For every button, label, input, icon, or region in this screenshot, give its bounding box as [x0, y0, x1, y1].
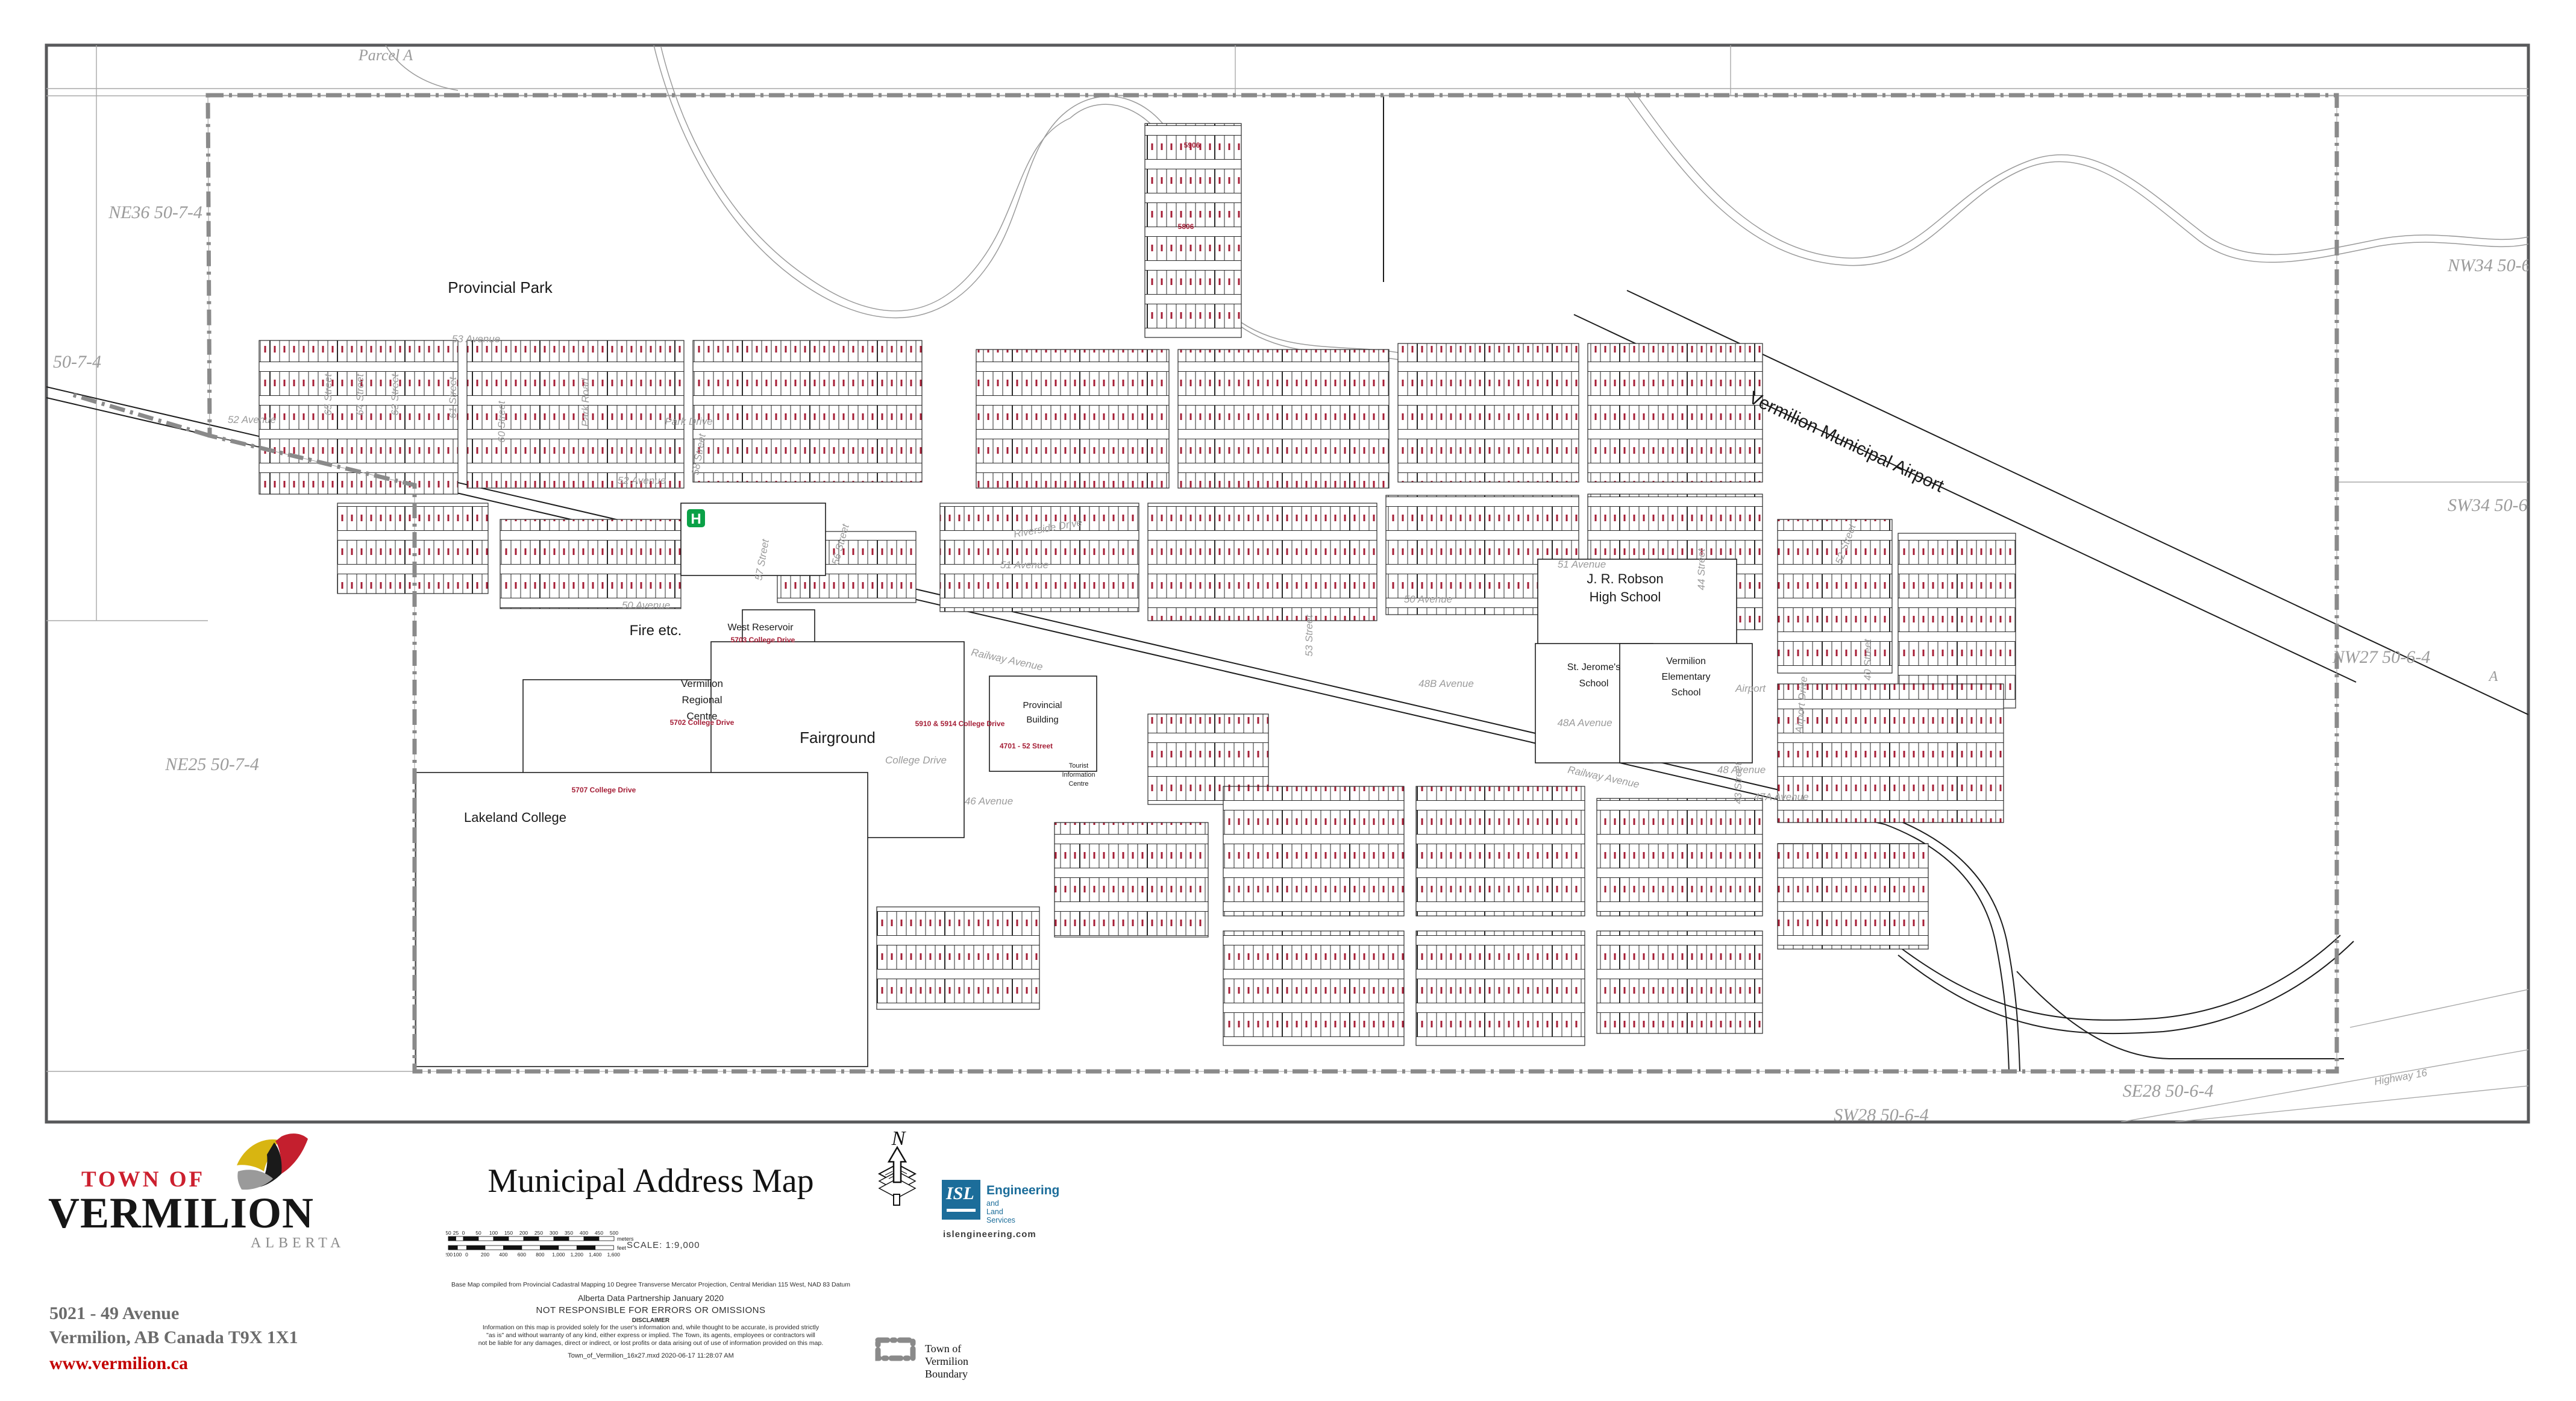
map-footer: TOWN OF VERMILION ALBERTA 5021 - 49 Aven…: [0, 1126, 2576, 1401]
address-label: 5703 College Drive: [731, 636, 795, 644]
facility-label: Provincial Park: [448, 278, 553, 296]
address-label: 5906: [1184, 141, 1200, 149]
street-label: 53 Street: [1303, 614, 1315, 656]
scale-ratio-text: SCALE: 1:9,000: [627, 1240, 700, 1250]
address-label: 5707 College Drive: [572, 786, 636, 794]
address-line-1: 5021 - 49 Avenue: [49, 1303, 179, 1324]
facility-label: Lakeland College: [464, 810, 566, 825]
street-label: 65 Street: [322, 373, 334, 415]
facility-label: School: [1672, 688, 1701, 698]
scale-tick: 0: [462, 1230, 465, 1236]
address-label: 5910 & 5914 College Drive: [915, 719, 1005, 728]
legend: Town of Vermilion Boundary: [872, 1334, 920, 1367]
scale-tick: 1,200: [571, 1252, 584, 1258]
street-label: 64 Street: [354, 373, 366, 415]
street-label: 60 Street: [496, 400, 507, 442]
isl-logo-box: ISL: [942, 1180, 980, 1220]
street-label: 53 Avenue: [452, 333, 500, 345]
address-label: 5702 College Drive: [670, 718, 735, 727]
street-label: 61 Street: [447, 376, 459, 418]
scale-tick: 200: [481, 1252, 489, 1258]
address-line-2: Vermilion, AB Canada T9X 1X1: [49, 1327, 298, 1348]
street-label: 50 Avenue: [1404, 594, 1452, 605]
scale-tick: 600: [518, 1252, 526, 1258]
scale-tick: 250: [534, 1230, 543, 1236]
facility-label: St. Jerome's: [1567, 662, 1620, 672]
scale-tick: 150: [504, 1230, 513, 1236]
data-partnership-credit: Alberta Data Partnership January 2020: [380, 1293, 922, 1303]
disclaimer-heading: DISCLAIMER: [380, 1317, 922, 1324]
scale-tick: 0: [465, 1252, 468, 1258]
region-label: NW34 50-6-4: [2447, 255, 2545, 275]
facility-label: Vermilion: [681, 678, 723, 689]
address-label: 5806: [1178, 222, 1194, 231]
scale-tick: 1,000: [552, 1252, 565, 1258]
page-title: Municipal Address Map: [416, 1162, 886, 1200]
isl-bar: [947, 1209, 976, 1212]
scale-tick: 400: [580, 1230, 588, 1236]
scale-tick: 100: [489, 1230, 498, 1236]
scale-tick: 1,600: [607, 1252, 621, 1258]
boundary-legend-label: Town of Vermilion Boundary: [925, 1343, 968, 1381]
isl-land-services-text: and Land Services: [986, 1199, 1015, 1224]
street-label: College Drive: [885, 754, 947, 766]
boundary-legend-icon: [872, 1334, 920, 1364]
address-label: 4701 - 52 Street: [1000, 742, 1053, 750]
disclaimer-line: not be liable for any damages, direct or…: [380, 1340, 922, 1347]
facility-label: Fire etc.: [630, 622, 682, 639]
region-label: Parcel A: [358, 46, 413, 64]
facility-label: School: [1579, 679, 1609, 689]
street-label: 40 Street: [1862, 638, 1873, 680]
map-sheet: H Parcel A NE36 50-7-4 50-7-4 NE25 50-7-…: [0, 0, 2576, 1401]
scale-tick: 400: [499, 1252, 507, 1258]
facility-label: High School: [1590, 589, 1661, 604]
region-label: SE28 50-6-4: [2123, 1081, 2214, 1101]
hospital-icon: H: [687, 509, 705, 527]
basemap-credit: Base Map compiled from Provincial Cadast…: [380, 1281, 922, 1288]
scale-tick: 450: [595, 1230, 603, 1236]
street-label: 46 Avenue: [965, 795, 1013, 807]
facility-label: J. R. Robson: [1587, 571, 1663, 586]
region-label: A: [2488, 669, 2498, 685]
isl-abbr: ISL: [946, 1183, 974, 1204]
scale-tick: 350: [565, 1230, 573, 1236]
facility-label: Centre: [1068, 780, 1088, 788]
facility-label: Tourist: [1069, 762, 1088, 769]
isl-url: islengineering.com: [943, 1229, 1036, 1240]
street-label: 48B Avenue: [1418, 678, 1474, 689]
errors-omissions-note: NOT RESPONSIBLE FOR ERRORS OR OMISSIONS: [380, 1305, 922, 1315]
street-label: 52 Avenue: [228, 414, 276, 425]
logo-name: VERMILION: [48, 1188, 314, 1238]
street-label: Park Road: [580, 378, 591, 427]
street-label: 51 Avenue: [1558, 559, 1606, 570]
facility-label: Vermilion: [1666, 656, 1706, 666]
north-label: N: [891, 1127, 907, 1150]
scale-tick: 25: [453, 1230, 459, 1236]
street-label: 44 Street: [1696, 548, 1707, 590]
street-label: 51 Avenue: [1000, 559, 1048, 571]
scale-tick: 500: [610, 1230, 618, 1236]
hospital-symbol: H: [691, 511, 701, 527]
logo-province: ALBERTA: [251, 1235, 345, 1252]
scale-tick: 1,400: [589, 1252, 602, 1258]
region-label: 50-7-4: [53, 352, 101, 372]
region-label: NW27 50-6-4: [2332, 647, 2430, 667]
file-info: Town_of_Vermilion_16x27.mxd 2020-06-17 1…: [380, 1352, 922, 1359]
street-label: 52 Avenue: [618, 475, 666, 486]
street-label: Airport: [1735, 683, 1766, 694]
website-link: www.vermilion.ca: [49, 1353, 188, 1374]
disclaimer-line: "as is" and without warranty of any kind…: [380, 1332, 922, 1340]
north-arrow: N: [871, 1127, 925, 1214]
region-label: SW34 50-6-4: [2448, 495, 2542, 515]
region-label: NE25 50-7-4: [165, 754, 259, 774]
credits-block: Base Map compiled from Provincial Cadast…: [380, 1281, 922, 1359]
facility-label: Fairground: [800, 729, 876, 747]
isl-engineering-text: Engineering: [986, 1183, 1059, 1198]
street-label: 63 Street: [389, 373, 401, 415]
scale-tick: 50: [475, 1230, 481, 1236]
scale-bar: 50 25 0 50 100 150 200 250 300 350 400 4…: [446, 1229, 651, 1264]
scale-tick: 300: [550, 1230, 558, 1236]
region-label: NE36 50-7-4: [108, 202, 202, 222]
street-label: 43 Street: [1732, 762, 1744, 804]
disclaimer-line: Information on this map is provided sole…: [380, 1324, 922, 1332]
scale-tick: 200: [446, 1252, 453, 1258]
facility-label: Building: [1026, 715, 1058, 725]
facility-label: Regional: [682, 694, 722, 706]
scale-tick: 100: [453, 1252, 462, 1258]
facility-label: Provincial: [1023, 700, 1062, 710]
scale-unit-feet: feet: [617, 1245, 627, 1251]
facility-label: West Reservoir: [727, 622, 794, 633]
street-label: 47A Avenue: [1753, 791, 1808, 803]
scale-tick: 200: [519, 1230, 528, 1236]
scale-tick: 800: [536, 1252, 544, 1258]
facility-label: Elementary: [1662, 672, 1711, 682]
scale-tick: 50: [446, 1230, 451, 1236]
street-label: 50 Avenue: [622, 600, 670, 611]
street-label: Park Drive: [665, 416, 712, 427]
facility-label: Information: [1062, 771, 1095, 779]
street-label: 48A Avenue: [1557, 717, 1612, 729]
